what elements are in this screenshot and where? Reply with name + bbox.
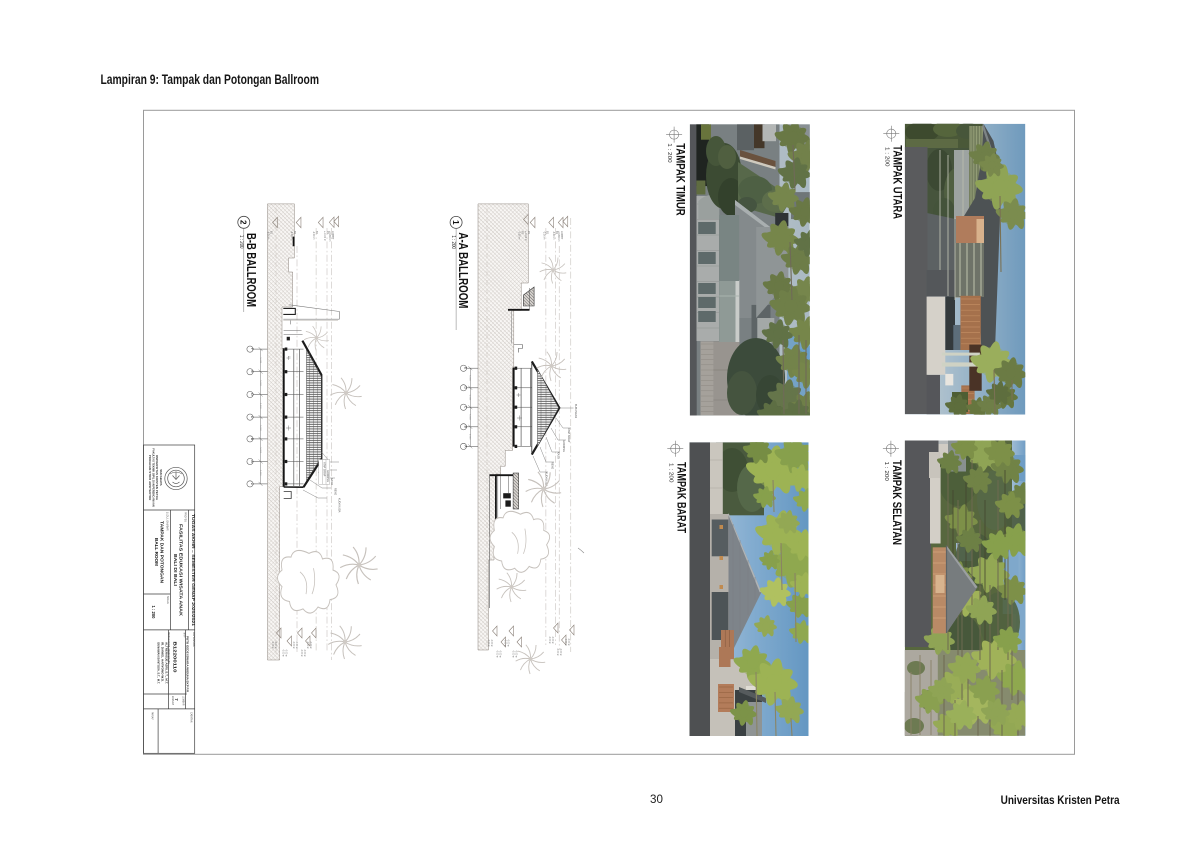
svg-text:5.000: 5.000: [469, 375, 471, 381]
svg-text:1 : 200: 1 : 200: [238, 235, 244, 249]
svg-text:C: C: [464, 406, 468, 409]
svg-text:MAHASISWA: MAHASISWA: [192, 632, 195, 647]
svg-text:5.000: 5.000: [259, 425, 261, 431]
svg-text:1 : 200: 1 : 200: [151, 605, 156, 619]
svg-text:JUDUL GAMBAR: JUDUL GAMBAR: [166, 512, 169, 531]
svg-text:-0.00 m: -0.00 m: [282, 649, 284, 657]
svg-text:SURABAYA: SURABAYA: [159, 469, 163, 486]
svg-text:+-0.00 m: +-0.00 m: [524, 231, 527, 241]
svg-text:SKALA: SKALA: [166, 596, 169, 604]
svg-text:5.000: 5.000: [259, 403, 261, 409]
svg-text:-0.00 m: -0.00 m: [556, 648, 558, 656]
svg-text:F: F: [250, 348, 254, 350]
svg-text:KASO: KASO: [557, 452, 560, 459]
svg-text:1 : 200: 1 : 200: [450, 235, 456, 249]
svg-text:FASILITAS EDUKASI WISATA ANAK: FASILITAS EDUKASI WISATA ANAK: [179, 524, 184, 617]
svg-text:-2.00 m: -2.00 m: [312, 231, 315, 239]
svg-text:-0.00 m: -0.00 m: [487, 639, 489, 647]
svg-text:-0.00 m: -0.00 m: [490, 639, 492, 647]
svg-text:BALI DI BALI: BALI DI BALI: [173, 554, 178, 586]
svg-text:B: B: [464, 426, 468, 429]
svg-text:-0.00 m: -0.00 m: [515, 650, 517, 658]
svg-text:1 : 200: 1 : 200: [666, 143, 672, 163]
svg-text:A-A BALLROOM: A-A BALLROOM: [456, 232, 470, 308]
svg-text:1 : 200: 1 : 200: [883, 462, 889, 482]
svg-text:2: 2: [239, 220, 248, 225]
svg-text:-0.00 m: -0.00 m: [271, 641, 273, 649]
svg-text:-0.00 m: -0.00 m: [548, 636, 550, 644]
svg-text:-0.00 m: -0.00 m: [512, 650, 514, 658]
svg-text:+-0.00 m: +-0.00 m: [323, 231, 326, 241]
svg-text:-0.00 m: -0.00 m: [567, 638, 569, 646]
svg-text:+0.800 m: +0.800 m: [557, 231, 560, 242]
svg-text:PUTU GEDE ISWARA WIGUNA EKP P.: PUTU GEDE ISWARA WIGUNA EKP P.R.: [186, 636, 190, 693]
svg-text:5.000: 5.000: [469, 414, 471, 420]
svg-text:B-B BALLROOM: B-B BALLROOM: [244, 233, 258, 307]
svg-text:-0.30 m: -0.30 m: [517, 231, 520, 239]
svg-text:RENG: RENG: [551, 462, 554, 469]
svg-text:-0.00 m: -0.00 m: [285, 649, 287, 657]
svg-text:PROGRAM STUDI ARSITEKTUR: PROGRAM STUDI ARSITEKTUR: [148, 455, 152, 501]
svg-text:|: |: [288, 356, 291, 357]
svg-text:-0.00 m: -0.00 m: [306, 641, 308, 649]
svg-text:PROYEK: PROYEK: [184, 512, 187, 522]
svg-text:-6.00 m: -6.00 m: [267, 231, 270, 239]
svg-text:BUBUNGAN: BUBUNGAN: [574, 404, 577, 418]
svg-text:1 : 200: 1 : 200: [884, 147, 890, 167]
svg-text:KASO: KASO: [330, 478, 333, 485]
svg-text:-0.00 m: -0.00 m: [559, 648, 561, 656]
svg-text:A: A: [464, 445, 468, 448]
svg-text:Universitas Kristen Petra: Universitas Kristen Petra: [1001, 793, 1120, 807]
svg-text:CATATAN: CATATAN: [190, 712, 193, 723]
svg-text:TAMPAK SELATAN: TAMPAK SELATAN: [890, 460, 904, 545]
svg-text:BALL ROOM: BALL ROOM: [154, 538, 159, 567]
svg-text:5.000: 5.000: [259, 380, 261, 386]
svg-text:1: 1: [451, 220, 460, 225]
svg-text:Lampiran 9: Tampak dan Potonga: Lampiran 9: Tampak dan Potongan Ballroom: [101, 72, 320, 88]
svg-text:B12200110: B12200110: [172, 642, 177, 674]
svg-text:RENG: RENG: [334, 488, 337, 495]
svg-text:-3.30 m: -3.30 m: [552, 231, 555, 239]
svg-text:ATAP SIRAP: ATAP SIRAP: [567, 428, 570, 443]
svg-text:TAMPAK DAN POTONGAN: TAMPAK DAN POTONGAN: [160, 521, 165, 583]
svg-text:D: D: [464, 387, 468, 390]
svg-text:5.000: 5.000: [469, 434, 471, 440]
svg-text:7: 7: [174, 698, 179, 701]
svg-text:PARAF: PARAF: [151, 712, 154, 720]
svg-text:-0.00 m: -0.00 m: [507, 639, 509, 647]
svg-text:D: D: [250, 393, 254, 396]
svg-text:5.000: 5.000: [469, 395, 471, 401]
svg-text:-0.00 m: -0.00 m: [564, 638, 566, 646]
svg-text:B: B: [250, 438, 254, 441]
svg-text:-0.00 m: -0.00 m: [551, 636, 553, 644]
svg-text:GORDING: GORDING: [326, 470, 329, 482]
svg-text:1 : 200: 1 : 200: [667, 463, 673, 483]
svg-text:5.000: 5.000: [259, 358, 261, 364]
svg-text:E: E: [464, 367, 468, 370]
svg-text:TAMPAK BARAT: TAMPAK BARAT: [675, 462, 689, 534]
svg-text:NRP: NRP: [182, 633, 184, 638]
svg-text:-0.00 m: -0.00 m: [292, 641, 294, 649]
svg-text:C: C: [250, 416, 254, 419]
svg-text:GUNAWAN SANTOSA, S.T., M.T.: GUNAWAN SANTOSA, S.T., M.T.: [157, 642, 161, 684]
svg-text:-0.00 m: -0.00 m: [309, 641, 311, 649]
svg-text:TAMPAK UTARA: TAMPAK UTARA: [890, 145, 904, 219]
svg-text:-0.00 m: -0.00 m: [300, 649, 302, 657]
svg-text:-2.00 m: -2.00 m: [543, 231, 546, 239]
svg-text:5.000: 5.000: [259, 470, 261, 476]
svg-text:-0.00 m: -0.00 m: [274, 641, 276, 649]
svg-text:5.000: 5.000: [259, 447, 261, 453]
svg-text:-0.00 m: -0.00 m: [303, 649, 305, 657]
svg-text:KUDA KUDA: KUDA KUDA: [338, 498, 341, 513]
svg-text:-0.00 m: -0.00 m: [504, 639, 506, 647]
svg-text:JUMLAH: JUMLAH: [171, 696, 174, 706]
svg-text:E: E: [250, 371, 254, 374]
svg-text:-0.00 m: -0.00 m: [496, 650, 498, 658]
svg-text:GORDING: GORDING: [562, 440, 565, 452]
svg-text:+0.800 m: +0.800 m: [328, 231, 331, 242]
svg-text:ATAP SIRAP: ATAP SIRAP: [323, 462, 326, 477]
svg-text:TUGAS AKHIR – SEMESTER GENAP 2: TUGAS AKHIR – SEMESTER GENAP 2020/2021: [191, 514, 195, 626]
svg-text:UNIVERSITAS KRISTEN PETRA: UNIVERSITAS KRISTEN PETRA: [155, 455, 159, 501]
svg-text:A: A: [250, 460, 254, 463]
svg-text:TAMPAK TIMUR: TAMPAK TIMUR: [673, 143, 687, 216]
svg-text:-0.00 m: -0.00 m: [499, 650, 501, 658]
svg-text:FAKULTAS TEKNIK SIPIL DAN PERE: FAKULTAS TEKNIK SIPIL DAN PERENCANAAN: [152, 448, 156, 506]
svg-text:-4.00 m: -4.00 m: [290, 231, 293, 239]
svg-text:LEMBAR: LEMBAR: [182, 696, 185, 706]
svg-text:Z: Z: [250, 483, 254, 485]
svg-text:30: 30: [650, 793, 663, 806]
svg-text:-0.00 m: -0.00 m: [295, 641, 297, 649]
